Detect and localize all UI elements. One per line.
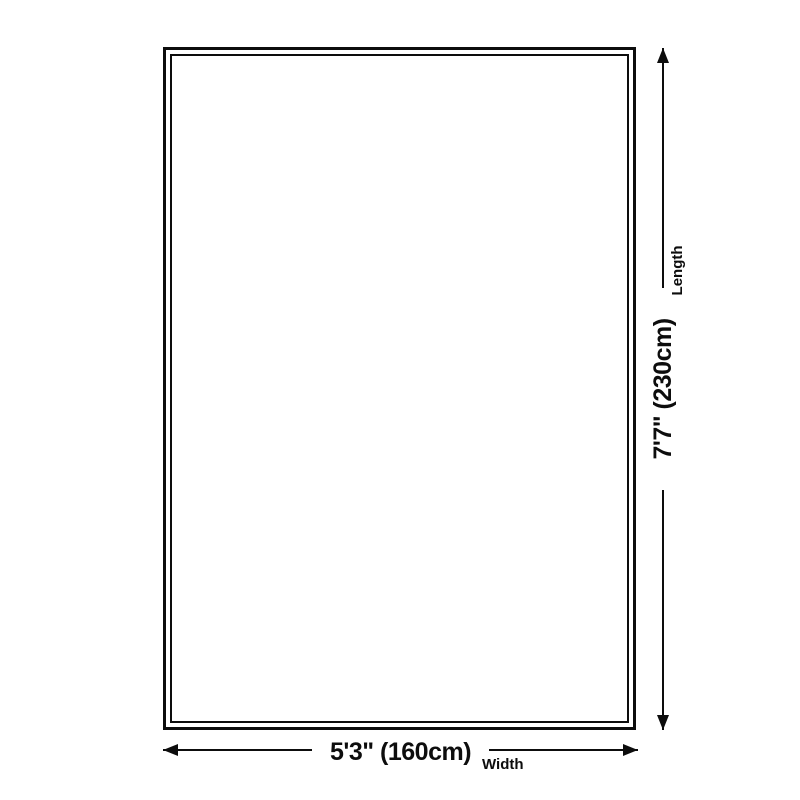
length-dimension: 7'7" (230cm) Length	[641, 48, 685, 730]
width-dimension: 5'3" (160cm) Width	[163, 728, 638, 772]
arrowhead-down-icon	[657, 715, 669, 730]
length-arrow-bottom-segment	[662, 490, 665, 730]
rug-inner-outline	[170, 54, 629, 723]
length-arrow-top-segment: Length	[662, 48, 665, 288]
width-arrow-right-segment: Width	[489, 749, 638, 752]
arrowhead-right-icon	[623, 744, 638, 756]
length-caption: Length	[670, 245, 685, 295]
arrowhead-up-icon	[657, 48, 669, 63]
width-caption: Width	[482, 757, 524, 772]
rug-outline	[163, 47, 636, 730]
width-arrow-left-segment	[163, 749, 312, 752]
width-value: 5'3" (160cm)	[312, 740, 489, 765]
arrowhead-left-icon	[163, 744, 178, 756]
rug-dimension-diagram: 5'3" (160cm) Width 7'7" (230cm) Length	[0, 0, 800, 800]
length-value: 7'7" (230cm)	[651, 288, 676, 489]
